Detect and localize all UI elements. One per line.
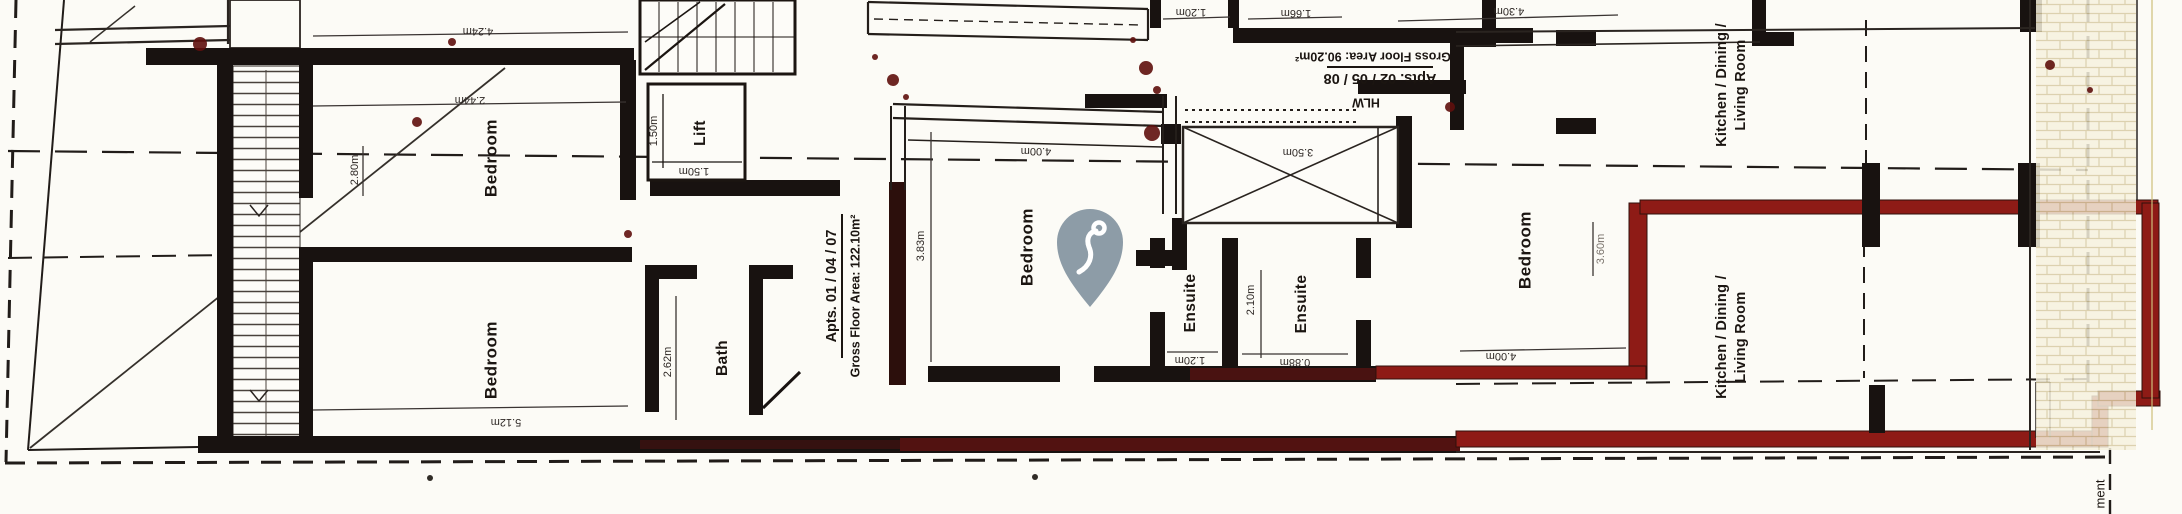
dim-bedroom-middle-depth: 3.83m bbox=[915, 231, 927, 262]
dim-top-a: 1.20m bbox=[1176, 6, 1207, 18]
room-label-bedroom-left-lower: Bedroom bbox=[481, 321, 500, 399]
dim-shaft-width: 3.50m bbox=[1283, 146, 1314, 158]
dim-bath-depth: 2.62m bbox=[662, 347, 674, 378]
room-label-kitchen-upper-line2: Living Room bbox=[1733, 39, 1749, 130]
room-label-kitchen-lower-line1: Kitchen / Dining / bbox=[1714, 275, 1730, 399]
dim-ensuite-right-depth: 2.10m bbox=[1245, 285, 1257, 316]
dim-bedroom-right-depth: 3.60m bbox=[1595, 234, 1607, 265]
hlw-label: HLW bbox=[1352, 96, 1380, 110]
room-label-ensuite-right: Ensuite bbox=[1293, 275, 1310, 334]
dim-bedroom-middle-width: 4.00m bbox=[1021, 145, 1052, 157]
dim-lift-width: 1.50m bbox=[648, 116, 660, 147]
dim-top-c: 4.30m bbox=[1494, 5, 1525, 17]
room-label-bedroom-middle: Bedroom bbox=[1017, 208, 1036, 286]
dim-bedroom-left-upper-width: 4.24m bbox=[463, 25, 494, 37]
room-label-kitchen-upper-line1: Kitchen / Dining / bbox=[1714, 23, 1730, 147]
dim-ensuite-right-width: 0.88m bbox=[1280, 356, 1311, 368]
dim-ensuite-left-width: 1.20m bbox=[1175, 354, 1206, 366]
room-label-bath: Bath bbox=[714, 340, 731, 376]
room-label-bedroom-right: Bedroom bbox=[1515, 211, 1534, 289]
edge-text-ment: ment bbox=[2092, 479, 2107, 508]
floor-plan-drawing: Bedroom Bedroom Lift Bath Bedroom Ensuit… bbox=[0, 0, 2182, 514]
room-label-ensuite-left: Ensuite bbox=[1182, 274, 1199, 333]
dim-bedroom-right-width: 4.00m bbox=[1486, 350, 1517, 362]
dim-bedroom-left-upper-depth: 2.80m bbox=[349, 155, 361, 186]
dim-bedroom-left-lower-width: 5.12m bbox=[491, 416, 522, 428]
apartment-area-left: Gross Floor Area: 122.10m² bbox=[848, 215, 862, 378]
apartment-label-left: Apts. 01 / 04 / 07 bbox=[824, 230, 840, 343]
room-label-lift: Lift bbox=[692, 120, 709, 146]
apartment-area-middle: Gross Floor Area: 90.20m² bbox=[1295, 50, 1451, 64]
upper-staircase-grid bbox=[640, 0, 795, 74]
dim-top-b: 1.66m bbox=[1281, 7, 1312, 19]
room-label-bedroom-left-upper: Bedroom bbox=[481, 119, 500, 197]
room-label-kitchen-lower-line2: Living Room bbox=[1733, 291, 1749, 382]
dim-bedroom-left-upper-inner: 2.44m bbox=[455, 94, 486, 106]
apartment-label-middle: Apts. 02 / 05 / 08 bbox=[1324, 70, 1437, 86]
void-shaft-box bbox=[1183, 127, 1398, 223]
staircase-strip bbox=[230, 0, 300, 442]
dim-lift-depth: 1.50m bbox=[679, 165, 710, 177]
floor-plan-page: Bedroom Bedroom Lift Bath Bedroom Ensuit… bbox=[0, 0, 2182, 514]
